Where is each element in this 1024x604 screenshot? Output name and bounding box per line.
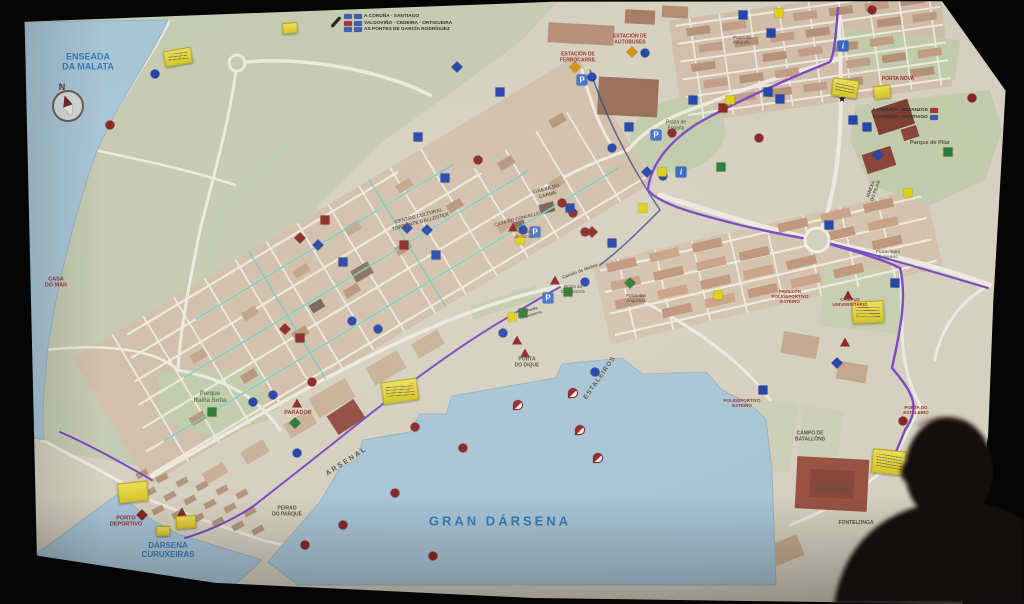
marker-circle[interactable]: [459, 444, 468, 453]
marker-square[interactable]: [441, 174, 450, 183]
sticky-note[interactable]: [831, 77, 859, 98]
marker-square[interactable]: [432, 251, 441, 260]
roadsign-top-right: A CORUÑA · BETANZOSA CORUÑA · SANTIAGO: [872, 108, 938, 121]
marker-square[interactable]: [849, 116, 858, 125]
marker-triangle[interactable]: [550, 276, 560, 285]
map-label: Praza da Constitución: [561, 284, 586, 294]
marker-diamond[interactable]: [626, 46, 637, 57]
marker-square[interactable]: [321, 216, 330, 225]
marker-square[interactable]: [863, 123, 872, 132]
marker-sail[interactable]: [568, 388, 578, 398]
map-label: Alameda de Suances: [517, 305, 542, 321]
map-label: POLIDEPORTIVO ESTEIRO: [723, 398, 760, 408]
map-label: Praza do Inferniño: [733, 35, 751, 45]
marker-square[interactable]: [296, 334, 305, 343]
road-badge: [354, 14, 362, 19]
roadsign-row: A CORUÑA · SANTIAGO: [344, 14, 452, 19]
road-badge: [344, 21, 352, 26]
marker-square[interactable]: [767, 29, 776, 38]
marker-circle[interactable]: [391, 489, 400, 498]
marker-square[interactable]: [625, 123, 634, 132]
road-badge: [930, 115, 938, 120]
marker-circle[interactable]: [474, 156, 483, 165]
map-label: DÁRSENA CURUXEIRAS: [142, 541, 195, 559]
map-label: IGREXA DO PILAR: [864, 178, 881, 202]
projection-map: N ★PPPPiiENSEADA DA MALATAGRAN DÁRSENADÁ…: [0, 0, 1024, 604]
map-label: CAMPO DE BATALLÓNS: [795, 431, 825, 443]
marker-square[interactable]: [566, 204, 575, 213]
info-icon[interactable]: i: [676, 167, 687, 178]
roadsign-text: VALDOVIÑO · CEDEIRA · ORTIGUEIRA: [364, 21, 452, 26]
roadsign-top-center: A CORUÑA · SANTIAGOVALDOVIÑO · CEDEIRA ·…: [344, 14, 452, 34]
marker-diamond[interactable]: [294, 232, 305, 243]
marker-square[interactable]: [400, 241, 409, 250]
map-label: ENSEADA DA MALATA: [62, 52, 114, 73]
marker-circle[interactable]: [269, 391, 278, 400]
sticky-note[interactable]: [163, 47, 193, 68]
marker-diamond[interactable]: [872, 149, 883, 160]
roadsign-text: A CORUÑA · SANTIAGO: [364, 14, 419, 19]
marker-circle[interactable]: [293, 449, 302, 458]
map-label: PORTO DEPORTIVO: [110, 516, 142, 529]
map-label: Praza de España: [666, 120, 686, 132]
marker-circle[interactable]: [499, 329, 508, 338]
marker-circle[interactable]: [429, 552, 438, 561]
marker-square[interactable]: [414, 133, 423, 142]
map-label: PARADOR: [284, 410, 311, 416]
roadsign-row: A CORUÑA · BETANZOS: [872, 108, 938, 113]
marker-pen[interactable]: [331, 16, 342, 28]
map-label: Praza das Angustias: [626, 293, 646, 303]
marker-triangle[interactable]: [512, 336, 522, 345]
marker-square[interactable]: [639, 204, 648, 213]
map-label: Praza de Armas: [514, 229, 533, 239]
map-label: CAMPUS UNIVERSITARIO: [833, 297, 868, 307]
map-label: Parque Raíña Sofía: [194, 391, 227, 405]
sticky-note[interactable]: [156, 526, 170, 536]
map-label: PORTA DO ESTALEIRO: [903, 405, 928, 415]
map-annotations: N ★PPPPiiENSEADA DA MALATAGRAN DÁRSENADÁ…: [0, 0, 1024, 604]
road-badge: [354, 21, 362, 26]
marker-diamond[interactable]: [421, 224, 432, 235]
parking-icon[interactable]: P: [543, 293, 554, 304]
marker-circle[interactable]: [339, 521, 348, 530]
sticky-note[interactable]: [282, 22, 298, 34]
roadsign-row: VALDOVIÑO · CEDEIRA · ORTIGUEIRA: [344, 21, 452, 26]
marker-circle[interactable]: [868, 6, 877, 15]
map-label: Parque de Pilar: [910, 140, 950, 146]
marker-square[interactable]: [739, 11, 748, 20]
marker-square[interactable]: [689, 96, 698, 105]
marker-diamond[interactable]: [451, 61, 462, 72]
info-icon[interactable]: i: [838, 41, 849, 52]
sticky-note[interactable]: [176, 515, 197, 529]
roadsign-text: AS PONTES DE GARCÍA RODRÍGUEZ: [364, 27, 450, 32]
compass-needle: [60, 94, 76, 118]
marker-square[interactable]: [825, 221, 834, 230]
marker-diamond[interactable]: [312, 239, 323, 250]
marker-circle[interactable]: [641, 49, 650, 58]
marker-circle[interactable]: [308, 378, 317, 387]
marker-diamond[interactable]: [641, 166, 652, 177]
road-badge: [344, 14, 352, 19]
sticky-note[interactable]: [117, 480, 149, 503]
marker-circle[interactable]: [374, 325, 383, 334]
roadsign-row: AS PONTES DE GARCÍA RODRÍGUEZ: [344, 27, 452, 32]
marker-diamond[interactable]: [279, 323, 290, 334]
roadsign-text: A CORUÑA · BETANZOS: [872, 108, 928, 113]
marker-square[interactable]: [904, 189, 913, 198]
marker-circle[interactable]: [968, 94, 977, 103]
marker-square[interactable]: [764, 88, 773, 97]
marker-triangle[interactable]: [292, 399, 302, 408]
handwriting: [167, 51, 189, 63]
marker-circle[interactable]: [301, 541, 310, 550]
marker-sail[interactable]: [575, 425, 585, 435]
marker-circle[interactable]: [411, 423, 420, 432]
map-label: PEIRAO DO PARQUE: [272, 506, 302, 518]
marker-circle[interactable]: [348, 317, 357, 326]
marker-square[interactable]: [726, 96, 735, 105]
marker-diamond[interactable]: [289, 417, 300, 428]
marker-square[interactable]: [496, 88, 505, 97]
map-label: PAVILLÓN POLIDEPORTIVO ESTEIRO: [771, 289, 808, 305]
map-label: PORTA NOVA: [882, 77, 914, 83]
roadsign-text: A CORUÑA · SANTIAGO: [873, 115, 928, 120]
handwriting: [835, 82, 855, 95]
map-label: CASA DO MAR: [45, 277, 67, 290]
marker-circle[interactable]: [755, 134, 764, 143]
map-label: ARSENAL: [325, 446, 370, 479]
parking-icon[interactable]: P: [577, 75, 588, 86]
roadsign-row: A CORUÑA · SANTIAGO: [872, 115, 938, 120]
marker-square[interactable]: [776, 95, 785, 104]
marker-square[interactable]: [508, 313, 517, 322]
marker-circle[interactable]: [249, 398, 258, 407]
marker-square[interactable]: [775, 9, 784, 18]
marker-square[interactable]: [339, 258, 348, 267]
road-badge: [344, 27, 352, 32]
map-label: ESTALEIROS: [582, 355, 617, 401]
compass-rose: [52, 90, 84, 122]
marker-circle[interactable]: [899, 417, 908, 426]
marker-square[interactable]: [891, 279, 900, 288]
projection-photo: N ★PPPPiiENSEADA DA MALATAGRAN DÁRSENADÁ…: [0, 0, 1024, 604]
marker-square[interactable]: [714, 291, 723, 300]
compass-n-label: N: [59, 82, 66, 92]
road-badge: [930, 108, 938, 113]
marker-circle[interactable]: [608, 144, 617, 153]
map-label: ESTACIÓN DE FERROCARRIL: [560, 52, 596, 64]
road-badge: [354, 27, 362, 32]
map-label: CENTRO CULTURAL TORRENTE BALLESTER: [390, 207, 450, 233]
marker-diamond[interactable]: [624, 277, 635, 288]
map-label: GRAN DÁRSENA: [429, 515, 571, 530]
map-label: ESTACIÓN DE AUTOBUSES: [613, 34, 647, 46]
map-label: Praza Álvaro Cunqueiro: [876, 250, 900, 260]
marker-circle[interactable]: [151, 70, 160, 79]
marker-square[interactable]: [717, 163, 726, 172]
marker-sail[interactable]: [593, 453, 603, 463]
handwriting: [876, 454, 903, 471]
map-label: Cantón de Molíns: [561, 262, 598, 280]
sticky-note[interactable]: [873, 85, 891, 100]
map-label: PORTA DO DIQUE: [515, 357, 540, 369]
marker-triangle[interactable]: [840, 338, 850, 347]
marker-square[interactable]: [608, 239, 617, 248]
marker-square[interactable]: [719, 104, 728, 113]
marker-square[interactable]: [944, 148, 953, 157]
parking-icon[interactable]: P: [651, 130, 662, 141]
map-label: FONTELONGA: [839, 521, 874, 527]
marker-square[interactable]: [208, 408, 217, 417]
marker-circle[interactable]: [588, 73, 597, 82]
marker-diamond[interactable]: [831, 357, 842, 368]
marker-square[interactable]: [759, 386, 768, 395]
handwriting: [386, 383, 415, 399]
marker-square[interactable]: [658, 168, 667, 177]
sticky-note[interactable]: [381, 378, 420, 405]
sticky-note[interactable]: [871, 448, 907, 475]
marker-sail[interactable]: [513, 400, 523, 410]
marker-circle[interactable]: [106, 121, 115, 130]
map-label: CUARTEL DE DOLORES: [816, 482, 849, 494]
